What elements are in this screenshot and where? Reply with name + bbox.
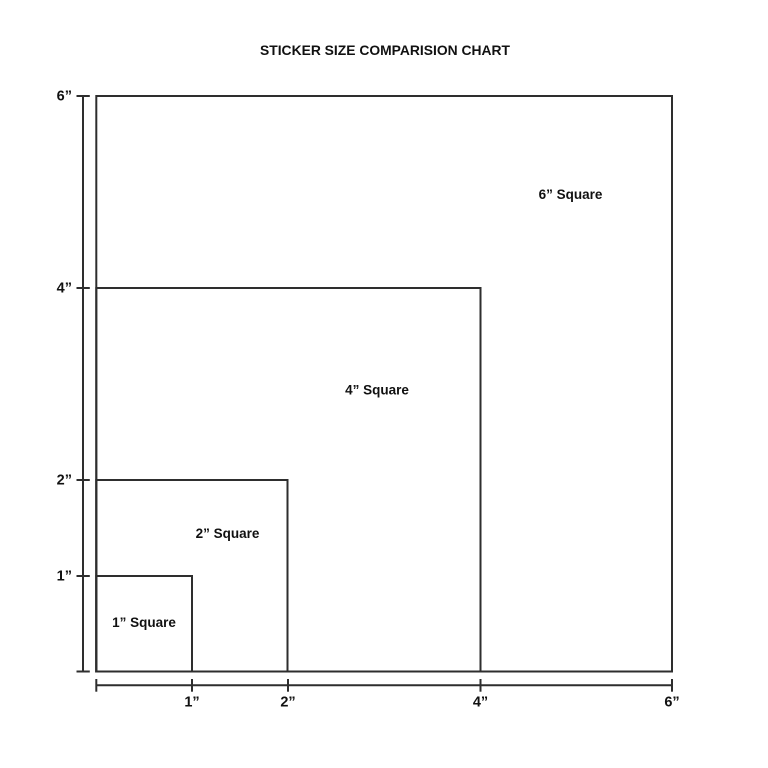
svg-text:STICKER SIZE COMPARISION CHART: STICKER SIZE COMPARISION CHART [260,42,510,58]
svg-text:2”: 2” [280,694,295,710]
svg-text:1”: 1” [184,694,199,710]
svg-text:1”: 1” [57,569,72,585]
svg-text:6”: 6” [57,89,72,105]
svg-text:2” Square: 2” Square [196,526,260,541]
svg-text:1” Square: 1” Square [112,615,176,630]
svg-text:4”: 4” [473,694,488,710]
svg-text:6”: 6” [664,694,679,710]
svg-text:4”: 4” [57,281,72,297]
svg-text:6” Square: 6” Square [539,187,603,202]
svg-text:4” Square: 4” Square [345,383,409,398]
svg-text:2”: 2” [57,473,72,489]
